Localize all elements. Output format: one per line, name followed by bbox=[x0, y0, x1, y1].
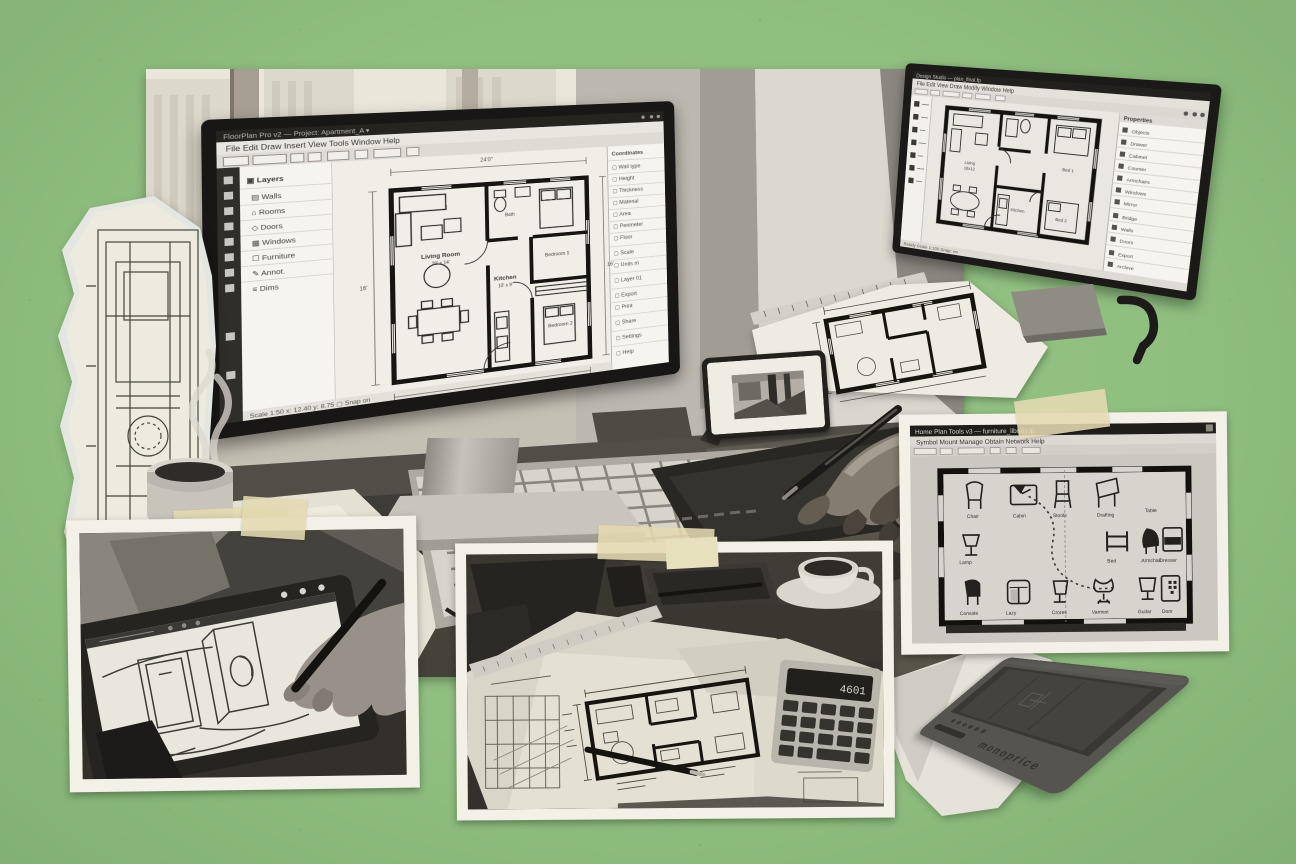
svg-text:Console: Console bbox=[960, 611, 979, 617]
svg-text:24'0": 24'0" bbox=[480, 157, 493, 163]
svg-text:Drafting: Drafting bbox=[1097, 512, 1115, 518]
svg-text:Bed: Bed bbox=[1107, 558, 1116, 564]
svg-text:Chair: Chair bbox=[967, 514, 979, 520]
svg-text:16': 16' bbox=[359, 286, 367, 293]
svg-text:Bath: Bath bbox=[505, 212, 515, 217]
svg-text:Symbol Mount Manage Obta: Symbol Mount Manage Obtain Network Help bbox=[916, 438, 1045, 446]
svg-text:Lazy: Lazy bbox=[1006, 610, 1017, 616]
svg-text:Guitar: Guitar bbox=[1138, 609, 1152, 615]
svg-text:Dresser: Dresser bbox=[1159, 558, 1177, 564]
svg-text:Cabin: Cabin bbox=[1013, 513, 1026, 519]
svg-text:Lamp: Lamp bbox=[959, 560, 972, 566]
svg-text:16': 16' bbox=[607, 261, 614, 267]
svg-text:Varmint: Varmint bbox=[1092, 610, 1110, 616]
svg-text:Door: Door bbox=[1162, 609, 1173, 615]
svg-text:Stools: Stools bbox=[1053, 513, 1067, 519]
svg-text:Table: Table bbox=[1145, 508, 1157, 514]
svg-text:Crores: Crores bbox=[1052, 610, 1068, 616]
